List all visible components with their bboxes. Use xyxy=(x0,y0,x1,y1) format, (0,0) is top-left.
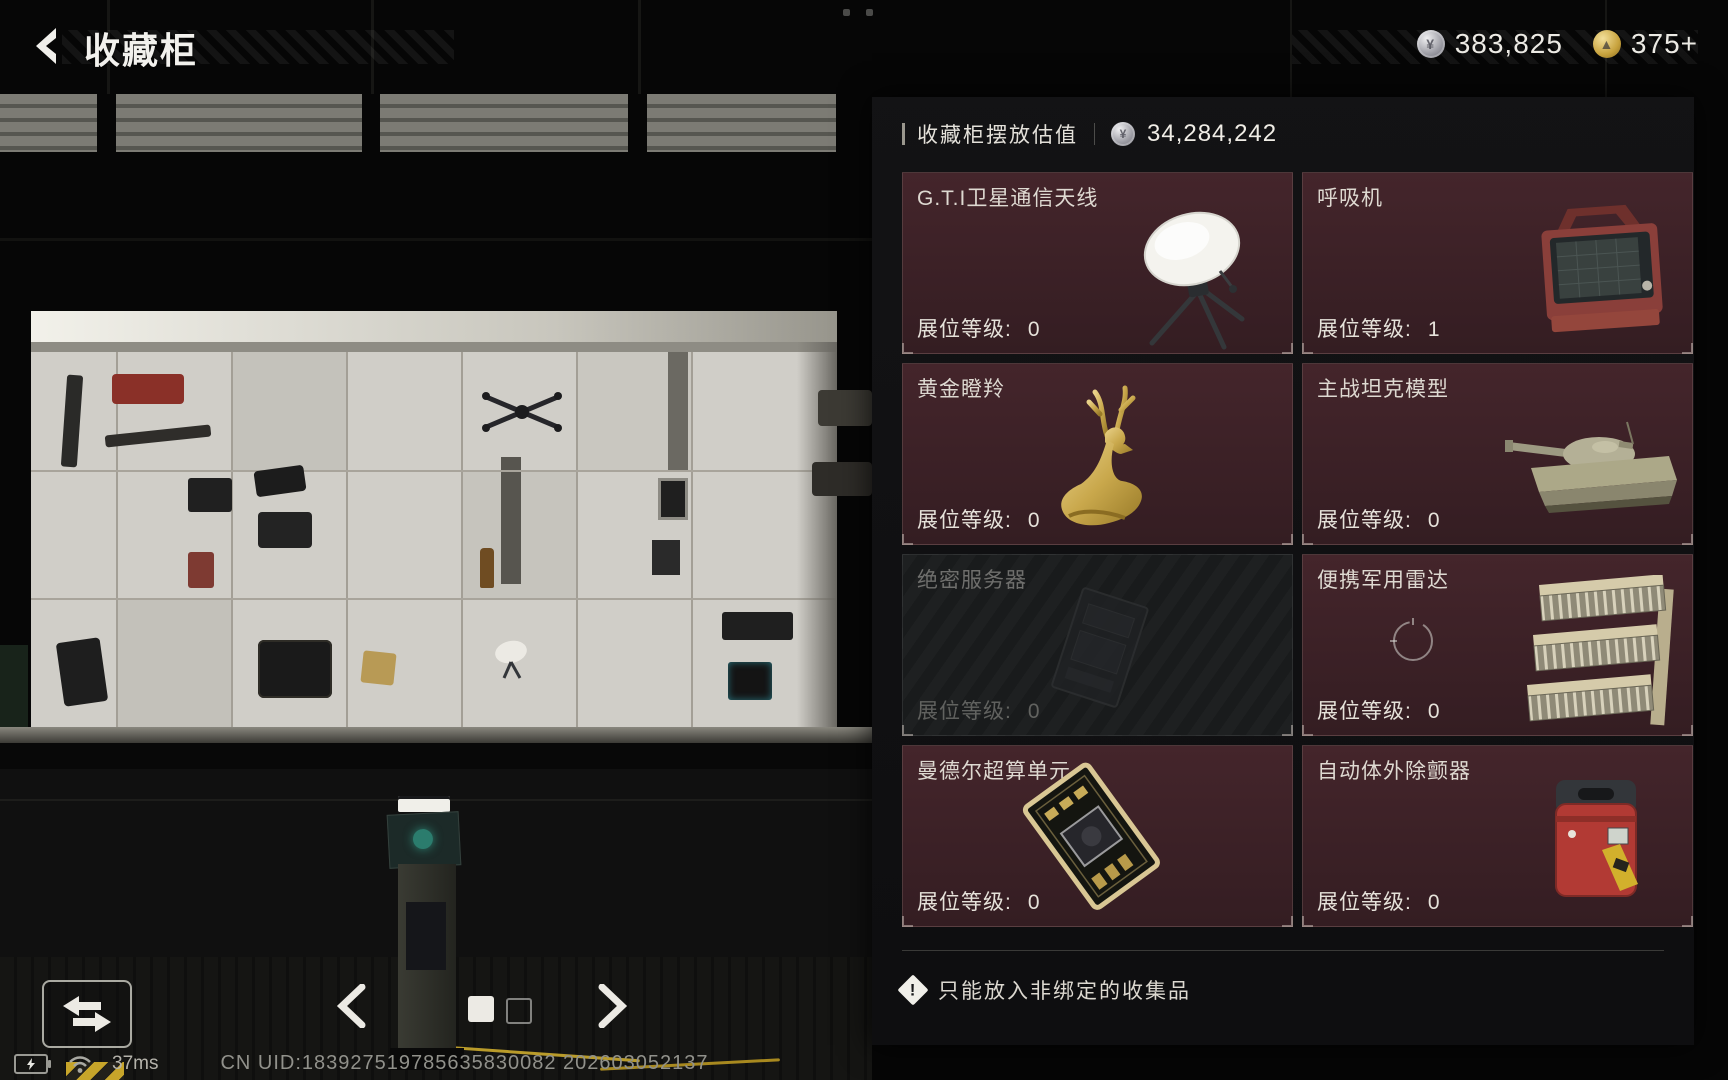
item-level: 展位等级:0 xyxy=(1317,504,1441,534)
collection-cabinet-screen: 收藏柜 ¥ 383,825 ▲ 375+ 收藏柜摆放估值 ¥ 34,284,24… xyxy=(0,0,1728,1080)
reticle-icon xyxy=(1389,617,1437,670)
tank-model-image xyxy=(1499,392,1684,532)
wall-line xyxy=(691,352,693,727)
item-name: G.T.I卫星通信天线 xyxy=(917,182,1098,212)
panel-total-value: 34,284,242 xyxy=(1147,120,1277,148)
uid-text: CN UID:183927519785635830082 20260305213… xyxy=(220,1052,708,1075)
kiosk-screen xyxy=(387,811,462,869)
cabinet-light-band xyxy=(31,311,837,342)
collection-panel: 收藏柜摆放估值 ¥ 34,284,242 G.T.I卫星通信天线 展位等级:0 xyxy=(872,97,1694,1045)
defibrillator-image xyxy=(1526,760,1666,920)
ceiling-seam xyxy=(638,0,641,94)
kiosk-pillar xyxy=(398,864,456,1054)
ceiling-vent xyxy=(380,94,628,152)
currency-premium[interactable]: ▲ 375+ xyxy=(1593,28,1698,60)
header-accent-bar xyxy=(902,123,905,145)
back-button[interactable] xyxy=(26,22,66,70)
wall-cell xyxy=(231,352,346,470)
collection-item-card[interactable]: 呼吸机 展位等级:1 xyxy=(1302,172,1693,354)
wall-line xyxy=(346,352,348,727)
panel-title: 收藏柜摆放估值 xyxy=(917,119,1078,149)
item-name: 曼德尔超算单元 xyxy=(917,755,1071,785)
collection-item-card-disabled[interactable]: 绝密服务器 展位等级:0 xyxy=(902,554,1293,736)
ceiling-vent xyxy=(0,94,97,152)
wall-slot xyxy=(501,457,521,584)
item-level: 展位等级:0 xyxy=(917,504,1041,534)
floor-shadow xyxy=(0,743,872,769)
wifi-icon xyxy=(68,1054,92,1074)
swap-view-button[interactable] xyxy=(42,980,132,1048)
back-icon xyxy=(26,22,66,70)
kiosk-panel xyxy=(406,902,446,970)
floor-edge xyxy=(0,727,872,743)
shelf-item-recorder xyxy=(188,478,232,512)
shelf-item-red-cart xyxy=(112,374,184,404)
shelf-item-bottle xyxy=(480,548,494,588)
shelf-item-briefcase xyxy=(258,640,332,698)
swap-view-icon xyxy=(61,994,113,1034)
shelf-item-box xyxy=(722,612,793,640)
wall-cell xyxy=(116,598,231,727)
item-level: 展位等级:0 xyxy=(1317,695,1441,725)
item-level: 展位等级:0 xyxy=(917,886,1041,916)
warning-icon: ! xyxy=(897,974,928,1005)
wall-slot xyxy=(668,352,688,470)
wall-line xyxy=(31,598,837,600)
shelf-item-frame xyxy=(658,478,688,520)
kiosk-sign xyxy=(398,796,450,812)
top-dot xyxy=(866,9,873,16)
kiosk-screen-glow xyxy=(412,829,433,850)
shelf-item-drone xyxy=(478,388,566,436)
item-name: 黄金瞪羚 xyxy=(917,373,1005,403)
ping-value: 37ms xyxy=(112,1053,158,1075)
prev-page-icon xyxy=(336,984,366,1028)
collection-item-card[interactable]: 黄金瞪羚 展位等级:0 xyxy=(902,363,1293,545)
wall-left-greeble xyxy=(0,645,28,727)
warning-row: ! 只能放入非绑定的收集品 xyxy=(902,975,1191,1005)
item-name: 绝密服务器 xyxy=(917,564,1027,594)
collection-item-card[interactable]: 便携军用雷达 展位 xyxy=(1302,554,1693,736)
currency-bar: ¥ 383,825 ▲ 375+ xyxy=(1417,28,1698,60)
item-level: 展位等级:0 xyxy=(917,695,1041,725)
value-coin-icon: ¥ xyxy=(1111,122,1135,146)
shelf-item-monitor xyxy=(728,662,772,700)
silver-coin-icon: ¥ xyxy=(1417,30,1445,58)
panel-footer-divider xyxy=(902,950,1664,951)
item-level: 展位等级:0 xyxy=(1317,886,1441,916)
next-page-icon xyxy=(598,984,628,1028)
military-radar-image xyxy=(1517,575,1682,740)
currency-koen-value: 383,825 xyxy=(1455,28,1563,60)
wall-top-strip xyxy=(31,342,837,352)
shelf-item-tablet xyxy=(56,637,108,707)
status-bar: 37ms CN UID:183927519785635830082 202603… xyxy=(14,1052,709,1075)
item-level: 展位等级:1 xyxy=(1317,313,1441,343)
collection-item-card[interactable]: 自动体外除颤器 展位等级:0 xyxy=(1302,745,1693,927)
satellite-dish-image xyxy=(1112,197,1272,357)
ventilator-image xyxy=(1518,199,1678,349)
battery-icon xyxy=(14,1054,48,1074)
ceiling-vent xyxy=(647,94,836,152)
wall-line xyxy=(461,352,463,727)
shelf-item-frame xyxy=(652,540,680,575)
shelf-item-camcorder xyxy=(258,512,312,548)
warning-text: 只能放入非绑定的收集品 xyxy=(938,975,1191,1005)
next-page-button[interactable] xyxy=(598,984,628,1033)
collection-item-card[interactable]: G.T.I卫星通信天线 展位等级:0 xyxy=(902,172,1293,354)
item-name: 自动体外除颤器 xyxy=(1317,755,1471,785)
ceiling-vent xyxy=(116,94,362,152)
header-divider xyxy=(1094,123,1095,145)
golden-gazelle-image xyxy=(1021,382,1171,547)
item-name: 主战坦克模型 xyxy=(1317,373,1449,403)
item-name: 呼吸机 xyxy=(1317,182,1383,212)
currency-premium-value: 375+ xyxy=(1631,28,1698,60)
prev-page-button[interactable] xyxy=(336,984,366,1033)
item-name: 便携军用雷达 xyxy=(1317,564,1449,594)
panel-header: 收藏柜摆放估值 ¥ 34,284,242 xyxy=(902,119,1277,149)
ceiling-beam xyxy=(0,238,872,241)
wall-line xyxy=(31,470,837,472)
currency-koen[interactable]: ¥ 383,825 xyxy=(1417,28,1563,60)
collection-item-card[interactable]: 主战坦克模型 展位等级:0 xyxy=(1302,363,1693,545)
wall-line xyxy=(231,352,233,727)
shelf-item-red-radio xyxy=(188,552,214,588)
shelf-item-mg xyxy=(812,462,872,496)
collection-item-card[interactable]: 曼德尔超算单元 展位等级:0 xyxy=(902,745,1293,927)
top-dot xyxy=(843,9,850,16)
page-title: 收藏柜 xyxy=(84,22,198,74)
shelf-item-mini-dish xyxy=(492,638,530,680)
shelf-item-tank xyxy=(818,390,872,426)
page-indicator-inactive xyxy=(506,998,532,1024)
item-level: 展位等级:0 xyxy=(917,313,1041,343)
wall-line xyxy=(576,352,578,727)
shelf-item-gold-cards xyxy=(360,650,396,685)
wall-line xyxy=(116,352,118,727)
page-indicator-active xyxy=(468,996,494,1022)
gold-coin-icon: ▲ xyxy=(1593,30,1621,58)
secret-server-image xyxy=(1023,575,1173,730)
